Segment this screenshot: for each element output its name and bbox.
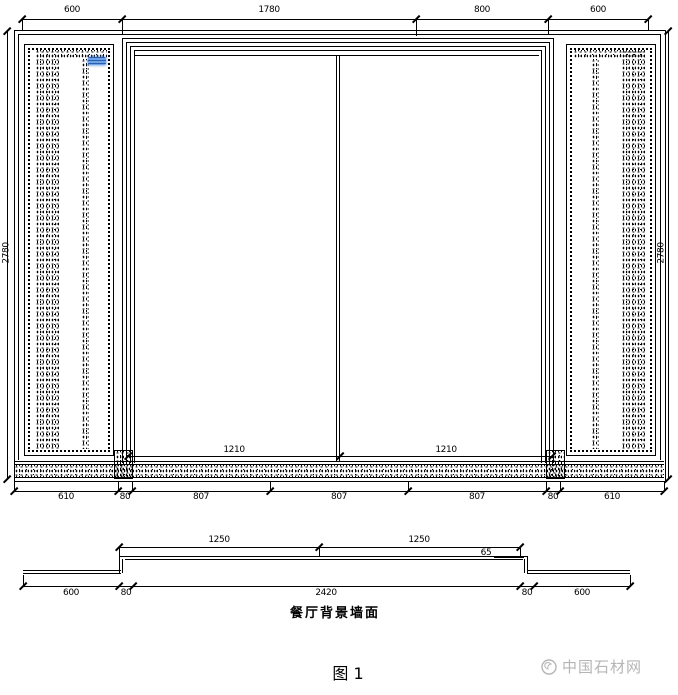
dim-label: 1250 [208,536,229,545]
dim-label: 1780 [258,6,279,15]
section-wall-line [23,573,121,574]
door-center-divider [339,55,340,462]
dim-line [668,30,669,480]
section-panel-line [119,556,527,557]
extension-line [560,481,561,491]
dim-label: 2420 [315,589,336,598]
stone-logo-icon [540,658,558,676]
jamb-pedestal [546,450,565,479]
wall-inner-line [18,34,19,460]
extension-line [119,548,120,556]
dim-label: 80 [522,589,533,598]
dim-label: 2780 [3,242,12,263]
drawing-title: 餐厅背景墙面 [290,602,380,621]
extension-line [648,20,649,30]
door-frame-inner [134,50,542,463]
extension-line [118,481,119,491]
right-stone-panel [566,44,656,456]
extension-line [132,481,133,491]
left-stone-panel [24,44,114,456]
section-wall-line [23,570,121,571]
selection-highlight [88,57,106,65]
wall-inner-line [18,34,660,35]
leader-line [494,557,524,558]
section-step-line [119,556,120,573]
extension-line [630,575,631,586]
dim-label: 600 [590,6,606,15]
extension-line [520,548,521,556]
extension-line [664,481,665,491]
section-step-line [524,559,525,573]
extension-line [14,481,15,491]
baseboard-stone-strip [14,465,664,477]
watermark-text: 中国石材网 [562,656,642,677]
extension-line [319,548,320,556]
watermark: 中国石材网 [540,656,642,677]
section-wall-line [527,573,630,574]
dim-label: 80 [548,493,559,502]
dim-label: 600 [574,589,590,598]
dim-label: 1210 [223,446,244,455]
dim-label: 600 [63,589,79,598]
extension-line [23,575,24,586]
dim-label: 80 [120,493,131,502]
stone-texture-bar [81,59,89,449]
stone-texture-bar [621,50,645,449]
stone-texture-bar [35,50,59,449]
extension-line [408,481,409,491]
dim-label: 610 [58,493,74,502]
door-top-line [135,55,539,56]
figure-caption: 图 1 [332,660,363,684]
baseboard-line [14,477,664,478]
extension-line [546,481,547,491]
jamb-pedestal [114,450,133,479]
dim-label: 800 [474,6,490,15]
dim-line [23,586,630,587]
section-step-line [122,559,123,573]
baseboard-line [14,461,664,462]
dim-label: 807 [193,493,209,502]
section-wall-line [527,570,630,571]
dim-label: 610 [604,493,620,502]
extension-line [22,20,23,30]
dim-label: 807 [469,493,485,502]
drawing-canvas: 600 1780 800 600 2780 2780 [0,0,678,695]
dim-label: 600 [64,6,80,15]
dim-label: 1210 [435,446,456,455]
dim-line [22,19,648,20]
dim-label: 1250 [408,536,429,545]
stone-texture-bar [591,59,599,449]
section-panel-line [125,559,523,560]
dim-label: 65 [481,549,492,558]
wall-inner-line [660,34,661,460]
extension-line [270,481,271,491]
tick-mark [3,475,11,483]
dim-label: 80 [121,589,132,598]
door-center-divider [336,55,337,462]
dim-label: 807 [331,493,347,502]
